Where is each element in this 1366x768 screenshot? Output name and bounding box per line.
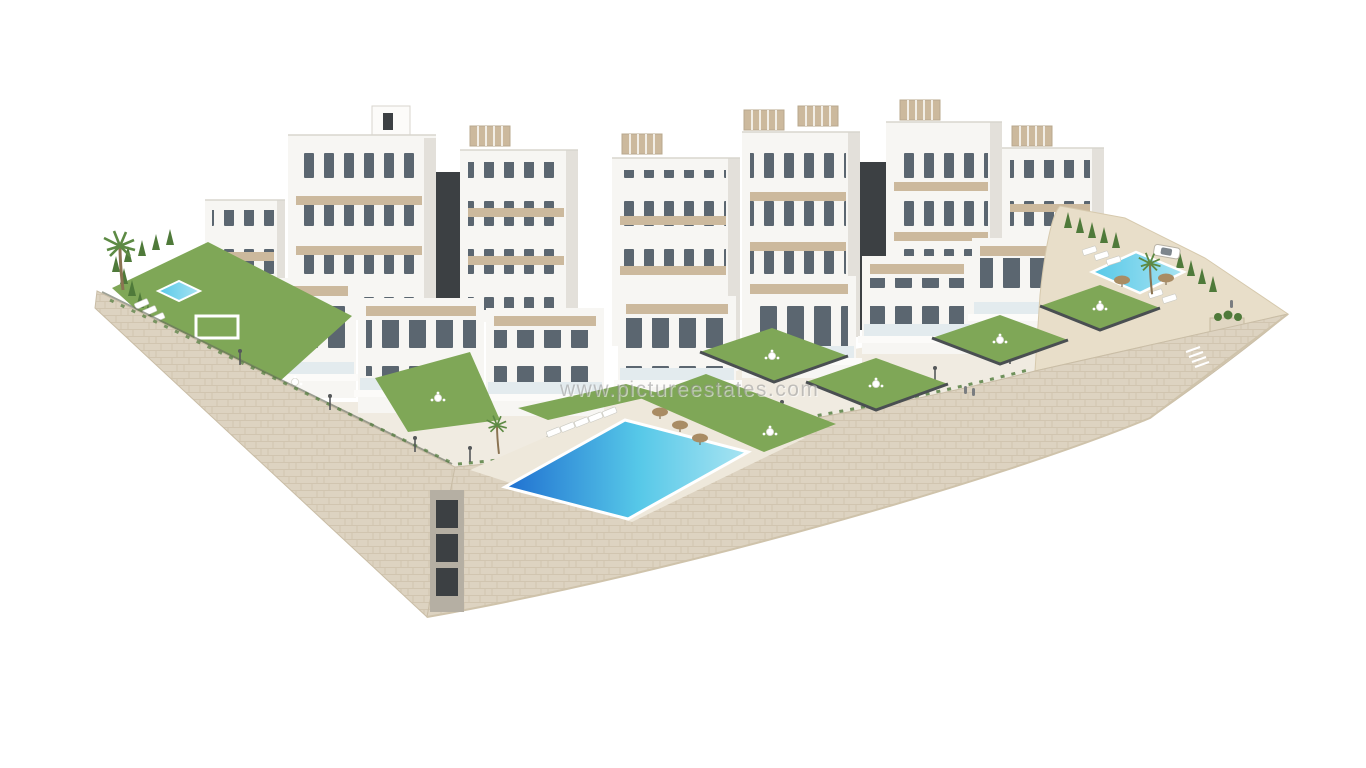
stairwell-core [430,490,464,612]
watermark-text: www.pictureestates.com [559,378,819,401]
rooftop-pergola [744,110,784,130]
render-scene: www.pictureestates.com www.pictureestate… [0,0,1366,768]
rooftop-pergola [900,100,940,120]
apartment-block [460,126,578,322]
rooftop-access-door [383,113,393,130]
rooftop-pergola [470,126,510,146]
rooftop-pergola [622,134,662,154]
architectural-render-canvas: www.pictureestates.com www.pictureestate… [0,0,1366,768]
watermark: www.pictureestates.com www.pictureestate… [559,378,820,402]
rooftop-pergola [1012,126,1052,146]
rooftop-pergola [798,106,838,126]
